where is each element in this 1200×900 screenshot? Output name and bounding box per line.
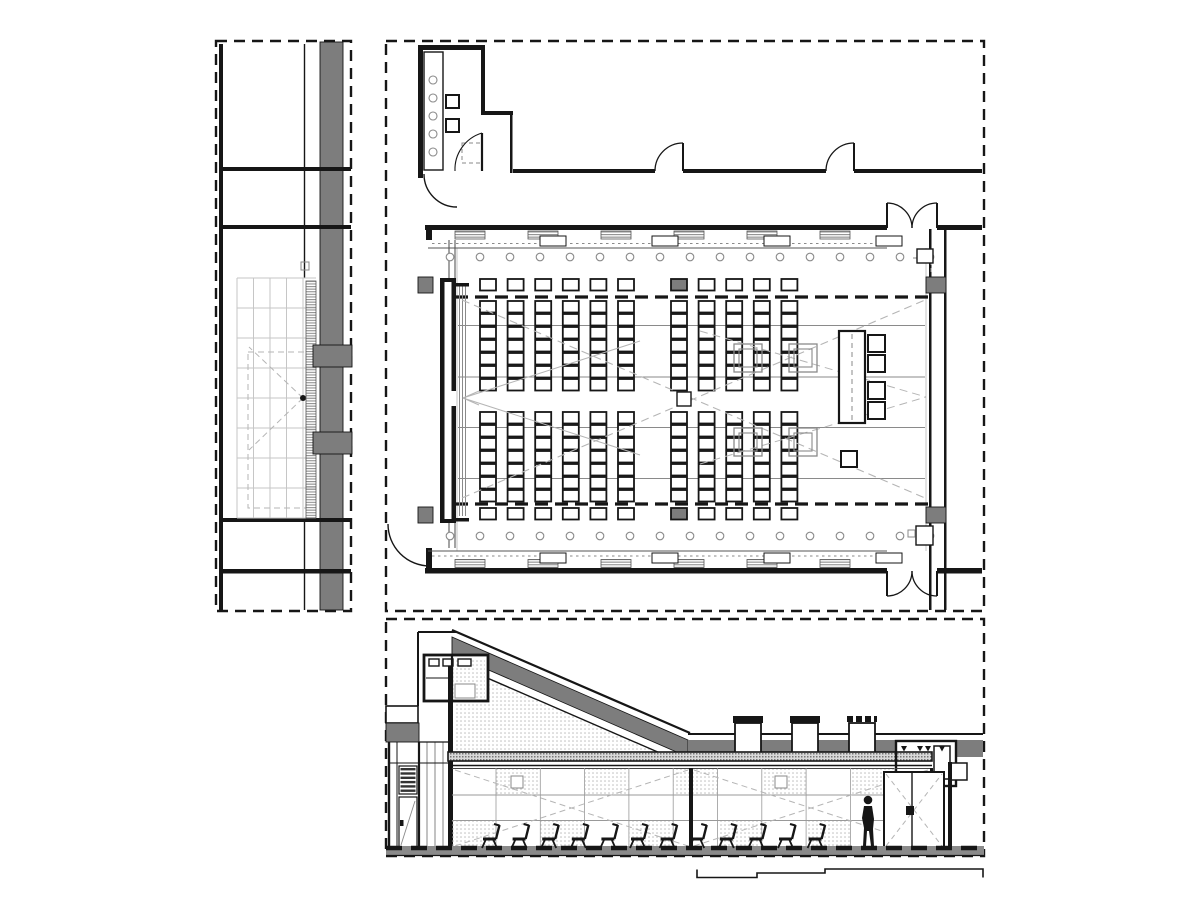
seat xyxy=(671,340,687,352)
seat xyxy=(563,379,579,391)
screen-wall-notch xyxy=(446,391,456,406)
seat xyxy=(781,477,797,489)
detail-plan-panel xyxy=(216,41,352,611)
acoustic-panel xyxy=(629,821,673,846)
operator-chair xyxy=(868,355,885,372)
seat xyxy=(699,490,715,502)
architectural-drawing xyxy=(0,0,1200,900)
seat xyxy=(590,327,606,339)
seat xyxy=(671,464,687,476)
seat xyxy=(590,366,606,378)
louver-slat xyxy=(401,785,416,787)
person-head xyxy=(864,796,873,805)
downlight-icon xyxy=(806,253,814,261)
detail-wall-poche xyxy=(320,42,343,610)
acoustic-panel xyxy=(452,821,496,846)
single-door-swing xyxy=(655,143,683,171)
person-body xyxy=(862,806,874,846)
seat xyxy=(563,451,579,463)
seat xyxy=(480,490,496,502)
acoustic-panel xyxy=(806,821,850,846)
floor-plan-panel xyxy=(386,41,984,611)
downlight-icon xyxy=(896,253,904,261)
seat xyxy=(563,301,579,313)
soffit-hatch-panel xyxy=(820,231,850,239)
small-fixture xyxy=(908,530,915,537)
seat xyxy=(508,353,524,365)
wall-tab xyxy=(313,345,352,367)
chair-back-cap xyxy=(820,824,826,826)
detail-screen-hatch xyxy=(306,281,316,518)
chair-back xyxy=(614,825,618,839)
structural-column xyxy=(926,507,946,523)
seat xyxy=(671,366,687,378)
seat xyxy=(590,477,606,489)
soffit-light-box xyxy=(540,553,566,563)
seat xyxy=(480,464,496,476)
seat xyxy=(508,451,524,463)
seat xyxy=(671,425,687,437)
seat xyxy=(480,340,496,352)
downlight-icon xyxy=(836,532,844,540)
seat xyxy=(671,412,687,424)
seat xyxy=(726,327,742,339)
seat xyxy=(699,477,715,489)
soffit-light-box xyxy=(652,553,678,563)
downlight-icon xyxy=(446,532,454,540)
downlight-icon xyxy=(896,532,904,540)
vestibule-parapet xyxy=(386,706,418,723)
seat xyxy=(781,379,797,391)
hall-bottom-wall xyxy=(425,568,887,574)
seat xyxy=(480,314,496,326)
aisle-box xyxy=(677,392,691,406)
seat xyxy=(480,353,496,365)
seat xyxy=(535,301,551,313)
section-east-wall xyxy=(948,762,952,848)
seat xyxy=(781,314,797,326)
downlight-icon xyxy=(596,253,604,261)
seat xyxy=(671,353,687,365)
seat xyxy=(671,451,687,463)
seat xyxy=(508,508,524,520)
seat xyxy=(590,314,606,326)
seat xyxy=(508,425,524,437)
seat xyxy=(754,412,770,424)
acoustic-panel xyxy=(673,769,717,794)
detail-left-wall xyxy=(219,44,223,610)
soffit-light-box xyxy=(764,553,790,563)
double-door-swing xyxy=(912,203,937,228)
seat xyxy=(618,327,634,339)
seat xyxy=(618,490,634,502)
seat xyxy=(618,301,634,313)
soffit-hatch-panel xyxy=(601,231,631,239)
seat xyxy=(781,464,797,476)
chair-back xyxy=(674,825,678,839)
chair-back xyxy=(703,825,707,839)
soffit-light-box xyxy=(764,236,790,246)
wall-tab xyxy=(313,432,352,454)
seat xyxy=(671,379,687,391)
seat xyxy=(590,412,606,424)
lighting-track-beam xyxy=(448,752,932,761)
downlight-icon xyxy=(506,253,514,261)
seat xyxy=(508,366,524,378)
seating-area xyxy=(480,279,797,520)
downlight-icon xyxy=(746,253,754,261)
housing-bracket xyxy=(950,763,967,780)
chair-back-cap xyxy=(612,824,618,826)
operator-chair xyxy=(868,335,885,352)
chair-back-cap xyxy=(731,824,737,826)
seat xyxy=(535,353,551,365)
seat xyxy=(480,279,496,291)
seat xyxy=(699,301,715,313)
seat xyxy=(754,327,770,339)
double-door-swing xyxy=(887,203,912,228)
seat xyxy=(618,314,634,326)
seat xyxy=(508,438,524,450)
room-step-wall xyxy=(481,111,513,115)
seat xyxy=(618,438,634,450)
audience-chair xyxy=(778,824,796,848)
downlight-icon xyxy=(566,532,574,540)
seat xyxy=(618,464,634,476)
seat xyxy=(535,490,551,502)
downlight-icon xyxy=(716,253,724,261)
section-column xyxy=(689,768,693,848)
structural-column xyxy=(926,277,946,293)
downlight-icon xyxy=(686,253,694,261)
seat xyxy=(699,314,715,326)
downlight-icon xyxy=(836,253,844,261)
lobby-door-swing-bottom xyxy=(388,524,430,566)
wall-cabinet xyxy=(917,249,933,263)
seat xyxy=(508,340,524,352)
chair-back-cap xyxy=(701,824,707,826)
downlight-icon xyxy=(476,532,484,540)
detail-partition-wall xyxy=(221,225,351,229)
seat xyxy=(699,438,715,450)
chair-back xyxy=(792,825,796,839)
chair-back-cap xyxy=(760,824,766,826)
wall-inset-box xyxy=(511,776,523,788)
seat xyxy=(754,464,770,476)
wall-cabinet xyxy=(916,526,933,545)
projection-screen xyxy=(460,286,466,516)
seat xyxy=(563,490,579,502)
chair-back-cap xyxy=(553,824,559,826)
detail-sightline xyxy=(249,398,303,450)
seat xyxy=(535,508,551,520)
downlight-icon xyxy=(536,532,544,540)
seat xyxy=(754,508,770,520)
seat xyxy=(618,353,634,365)
chair-back-cap xyxy=(672,824,678,826)
room-equipment-box xyxy=(446,95,459,108)
seat xyxy=(726,314,742,326)
seat xyxy=(590,425,606,437)
chair-back-cap xyxy=(494,824,500,826)
chair-back-cap xyxy=(524,824,530,826)
downlight-icon xyxy=(476,253,484,261)
seat xyxy=(671,301,687,313)
chair-back xyxy=(496,825,500,839)
structural-column xyxy=(671,279,687,291)
seat xyxy=(699,412,715,424)
operator-chair xyxy=(868,402,885,419)
lobby-door-swing-top xyxy=(424,174,457,207)
seat xyxy=(563,366,579,378)
chair-back xyxy=(585,825,589,839)
section-panel xyxy=(386,619,984,878)
audience-chair xyxy=(512,824,529,848)
audience-chair xyxy=(600,824,618,848)
hall-corner-stub xyxy=(426,226,432,240)
rooftop-units xyxy=(733,716,877,757)
seat xyxy=(699,464,715,476)
seat xyxy=(726,477,742,489)
chair-back-cap xyxy=(583,824,589,826)
seat xyxy=(781,490,797,502)
double-door-swing xyxy=(887,571,912,596)
seat xyxy=(480,412,496,424)
soffit-hatch-panel xyxy=(601,560,631,568)
structural-column xyxy=(671,508,687,520)
seat xyxy=(535,314,551,326)
seat xyxy=(508,477,524,489)
projection-room-vent xyxy=(458,659,471,666)
seat xyxy=(590,279,606,291)
structural-column xyxy=(418,277,433,293)
chair-back xyxy=(762,825,766,839)
seat xyxy=(671,314,687,326)
seat xyxy=(590,340,606,352)
downlight-icon xyxy=(866,532,874,540)
seat xyxy=(699,425,715,437)
seat xyxy=(480,379,496,391)
counter-circle xyxy=(429,94,437,102)
seat xyxy=(563,279,579,291)
seat xyxy=(699,508,715,520)
seat xyxy=(480,366,496,378)
seat xyxy=(508,301,524,313)
seat xyxy=(563,477,579,489)
seat xyxy=(781,327,797,339)
seat xyxy=(671,438,687,450)
seat xyxy=(671,327,687,339)
seat xyxy=(726,464,742,476)
louver-slat xyxy=(401,768,416,770)
seat xyxy=(535,477,551,489)
seat xyxy=(618,477,634,489)
seat xyxy=(699,366,715,378)
downlight-icon xyxy=(566,253,574,261)
equipment-box xyxy=(841,451,857,467)
seat xyxy=(508,490,524,502)
soffit-light-box xyxy=(876,553,902,563)
louver-slat xyxy=(401,772,416,774)
seat xyxy=(726,301,742,313)
seat xyxy=(480,451,496,463)
room-door-swing xyxy=(455,133,482,171)
rooftop-unit-cap xyxy=(790,716,820,723)
seat xyxy=(671,477,687,489)
soffit-band-bottom xyxy=(455,553,902,568)
seat xyxy=(563,340,579,352)
seat xyxy=(699,340,715,352)
downlight-icon xyxy=(626,253,634,261)
seat xyxy=(508,279,524,291)
seat xyxy=(535,379,551,391)
room-left-wall xyxy=(418,45,423,178)
standing-person xyxy=(862,796,874,846)
corridor-wall xyxy=(854,169,982,173)
detail-partition-wall xyxy=(221,518,351,522)
corridor-wall-stub xyxy=(510,115,513,173)
seat xyxy=(699,451,715,463)
seat xyxy=(535,279,551,291)
downlight-icon xyxy=(776,532,784,540)
room-right-wall xyxy=(481,45,485,115)
counter-circle xyxy=(429,76,437,84)
soffit-hatch-panel xyxy=(820,560,850,568)
single-door-swing xyxy=(826,143,854,171)
seat xyxy=(726,379,742,391)
seat xyxy=(618,279,634,291)
vestibule-roof-poche xyxy=(386,723,419,742)
seat xyxy=(781,301,797,313)
hall-top-wall xyxy=(937,225,982,230)
seat xyxy=(590,451,606,463)
hall-bottom-wall xyxy=(937,568,982,574)
seat xyxy=(480,508,496,520)
detail-focus-point xyxy=(300,395,306,401)
seat xyxy=(726,508,742,520)
seat xyxy=(535,340,551,352)
seat xyxy=(726,490,742,502)
seat xyxy=(618,412,634,424)
seat xyxy=(781,412,797,424)
seat xyxy=(590,379,606,391)
rooftop-unit-cap xyxy=(733,716,763,723)
chair-back xyxy=(526,825,530,839)
downlight-icon xyxy=(656,253,664,261)
detail-sightline xyxy=(249,347,303,398)
soffit-hatch-panel xyxy=(455,231,485,239)
seat xyxy=(754,477,770,489)
wall-inset-box xyxy=(775,776,787,788)
room-dashed-zone xyxy=(462,143,482,163)
seat xyxy=(618,508,634,520)
detail-partition-wall xyxy=(221,569,351,574)
seat xyxy=(480,327,496,339)
operator-chair xyxy=(868,382,885,399)
seat xyxy=(508,412,524,424)
hall-corner-stub xyxy=(426,548,432,573)
screen-end-cap xyxy=(456,283,469,287)
downlight-icon xyxy=(656,532,664,540)
chair-back-cap xyxy=(790,824,796,826)
downlight-icon xyxy=(746,532,754,540)
seat xyxy=(590,464,606,476)
downlight-icon xyxy=(626,532,634,540)
counter-circle xyxy=(429,130,437,138)
acoustic-panel xyxy=(585,769,629,794)
seat xyxy=(754,301,770,313)
downlight-icon xyxy=(806,532,814,540)
seat xyxy=(590,301,606,313)
corridor-wall xyxy=(513,169,655,173)
downlight-icon xyxy=(596,532,604,540)
downlight-icon xyxy=(716,532,724,540)
seat xyxy=(535,438,551,450)
seat xyxy=(563,438,579,450)
seat xyxy=(563,464,579,476)
seat xyxy=(590,490,606,502)
corridor-wall xyxy=(683,169,826,173)
room-top-wall xyxy=(418,45,485,50)
chair-back-cap xyxy=(642,824,648,826)
soffit-light-box xyxy=(876,236,902,246)
seat xyxy=(480,425,496,437)
drawing-canvas xyxy=(0,0,1200,900)
downlight-icon xyxy=(686,532,694,540)
seat xyxy=(563,327,579,339)
downlight-icon xyxy=(776,253,784,261)
projector-box xyxy=(455,684,475,698)
downlight-icon xyxy=(536,253,544,261)
counter-circle xyxy=(429,112,437,120)
seat xyxy=(508,314,524,326)
projection-room-vent xyxy=(429,659,439,666)
floor-boxes xyxy=(734,344,817,456)
seat xyxy=(754,279,770,291)
soffit-light-box xyxy=(540,236,566,246)
acoustic-panel xyxy=(541,821,585,846)
louver-slat xyxy=(401,781,416,783)
downlight-icon xyxy=(506,532,514,540)
door-handle xyxy=(906,806,914,815)
seat xyxy=(590,508,606,520)
seat xyxy=(563,412,579,424)
soffit-light-box xyxy=(652,236,678,246)
louver-slat xyxy=(401,790,416,792)
downlight-icon xyxy=(866,253,874,261)
soffit-hatch-panel xyxy=(455,560,485,568)
seat xyxy=(781,508,797,520)
seat xyxy=(699,353,715,365)
seat xyxy=(563,508,579,520)
seat xyxy=(618,379,634,391)
seat xyxy=(726,279,742,291)
door-handle xyxy=(400,820,404,826)
seat xyxy=(699,279,715,291)
seat xyxy=(699,379,715,391)
counter-circle xyxy=(429,148,437,156)
detail-dashed-zone xyxy=(248,352,306,508)
room-equipment-box xyxy=(446,119,459,132)
seat xyxy=(781,279,797,291)
stepped-datum-line xyxy=(697,869,983,878)
seat xyxy=(508,464,524,476)
seat xyxy=(671,490,687,502)
seat xyxy=(480,438,496,450)
screen-end-cap xyxy=(456,518,469,522)
seat xyxy=(754,379,770,391)
hall-top-wall xyxy=(425,225,887,230)
